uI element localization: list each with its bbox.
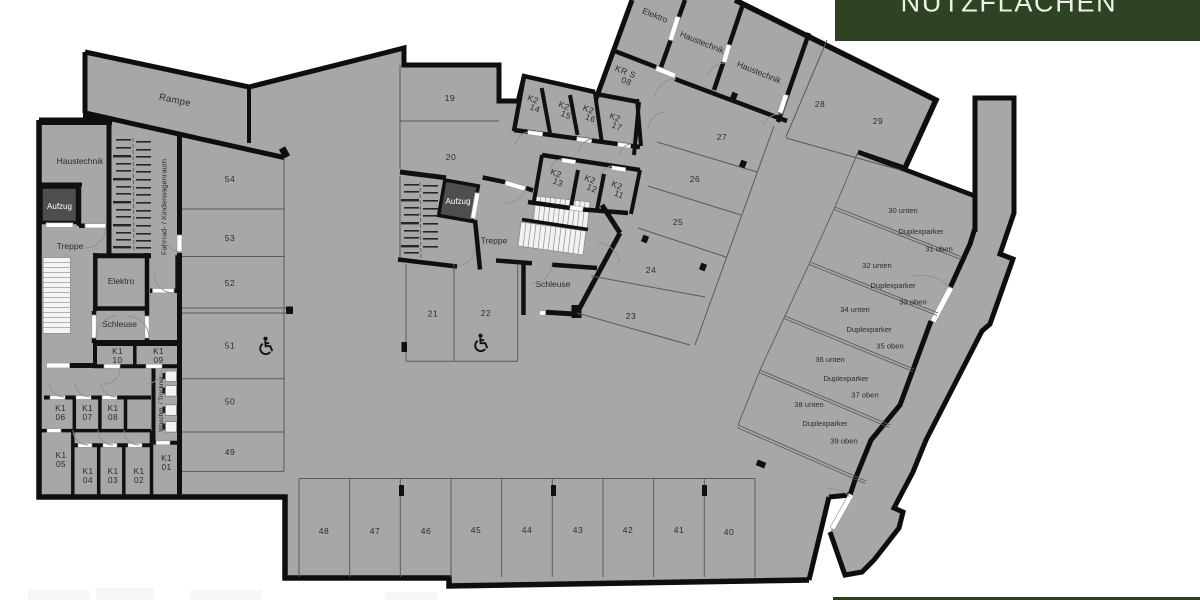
svg-text:Duplexparker: Duplexparker [823, 374, 869, 383]
svg-text:10: 10 [113, 356, 123, 365]
svg-text:K1: K1 [82, 404, 93, 413]
svg-text:27: 27 [717, 132, 727, 142]
svg-text:22: 22 [481, 308, 491, 318]
svg-text:28: 28 [815, 99, 825, 109]
svg-text:Duplexparker: Duplexparker [846, 325, 892, 334]
svg-text:43: 43 [573, 525, 583, 535]
svg-text:09: 09 [154, 356, 164, 365]
svg-text:Treppe: Treppe [481, 236, 508, 246]
svg-text:K1: K1 [108, 404, 119, 413]
svg-text:20: 20 [446, 152, 456, 162]
svg-text:NUTZFLÄCHEN: NUTZFLÄCHEN [901, 0, 1118, 18]
svg-text:37 oben: 37 oben [851, 391, 878, 400]
svg-text:36 unten: 36 unten [815, 355, 845, 364]
svg-text:Elektro: Elektro [108, 276, 135, 286]
svg-text:K1: K1 [55, 404, 66, 413]
svg-text:42: 42 [623, 525, 633, 535]
svg-text:Schleuse: Schleuse [536, 279, 571, 289]
svg-text:Duplexparker: Duplexparker [802, 419, 848, 428]
svg-text:51: 51 [225, 341, 235, 351]
svg-text:32 unten: 32 unten [862, 261, 892, 270]
svg-text:21: 21 [428, 309, 438, 319]
svg-text:Aufzug: Aufzug [47, 202, 72, 211]
svg-text:34 unten: 34 unten [840, 305, 870, 314]
svg-text:Aufzug: Aufzug [446, 197, 471, 206]
svg-text:Duplexparker: Duplexparker [870, 281, 916, 290]
svg-text:23: 23 [626, 311, 636, 321]
svg-text:29: 29 [873, 116, 883, 126]
svg-text:39 oben: 39 oben [830, 437, 857, 446]
svg-text:Duplexparker: Duplexparker [898, 227, 944, 236]
svg-text:49: 49 [225, 447, 235, 457]
svg-text:01: 01 [162, 463, 172, 472]
svg-text:Treppe: Treppe [57, 241, 84, 251]
svg-text:30 unten: 30 unten [888, 206, 918, 215]
svg-text:K1: K1 [56, 451, 67, 460]
svg-text:24: 24 [646, 265, 656, 275]
svg-text:31 oben: 31 oben [925, 245, 952, 254]
svg-text:44: 44 [522, 525, 532, 535]
svg-text:19: 19 [445, 93, 455, 103]
svg-text:35 oben: 35 oben [876, 342, 903, 351]
svg-text:45: 45 [471, 525, 481, 535]
svg-text:K1: K1 [112, 347, 123, 356]
svg-text:K1: K1 [153, 347, 164, 356]
svg-text:26: 26 [690, 174, 700, 184]
svg-text:05: 05 [56, 460, 66, 469]
svg-text:Fahrrad- / Kinderwagenraum: Fahrrad- / Kinderwagenraum [160, 159, 169, 255]
svg-text:25: 25 [673, 217, 683, 227]
svg-text:Schleuse: Schleuse [102, 319, 137, 329]
svg-text:46: 46 [421, 526, 431, 536]
svg-text:48: 48 [319, 526, 329, 536]
svg-text:Waschm. / Trockner: Waschm. / Trockner [158, 376, 165, 432]
svg-text:52: 52 [225, 278, 235, 288]
svg-text:K1: K1 [134, 467, 145, 476]
svg-text:41: 41 [674, 525, 684, 535]
svg-text:K1: K1 [83, 467, 94, 476]
svg-text:08: 08 [108, 413, 118, 422]
svg-text:02: 02 [134, 476, 144, 485]
svg-text:38 unten: 38 unten [794, 400, 824, 409]
svg-text:Haustechnik: Haustechnik [57, 156, 105, 166]
svg-text:50: 50 [225, 397, 235, 407]
svg-text:40: 40 [724, 527, 734, 537]
svg-text:54: 54 [225, 174, 235, 184]
svg-text:47: 47 [370, 526, 380, 536]
svg-text:07: 07 [83, 413, 93, 422]
svg-text:53: 53 [225, 233, 235, 243]
svg-text:03: 03 [108, 476, 118, 485]
svg-text:04: 04 [83, 476, 93, 485]
svg-text:06: 06 [56, 413, 66, 422]
svg-text:33 oben: 33 oben [899, 298, 926, 307]
svg-text:K1: K1 [108, 467, 119, 476]
svg-text:K1: K1 [161, 454, 172, 463]
